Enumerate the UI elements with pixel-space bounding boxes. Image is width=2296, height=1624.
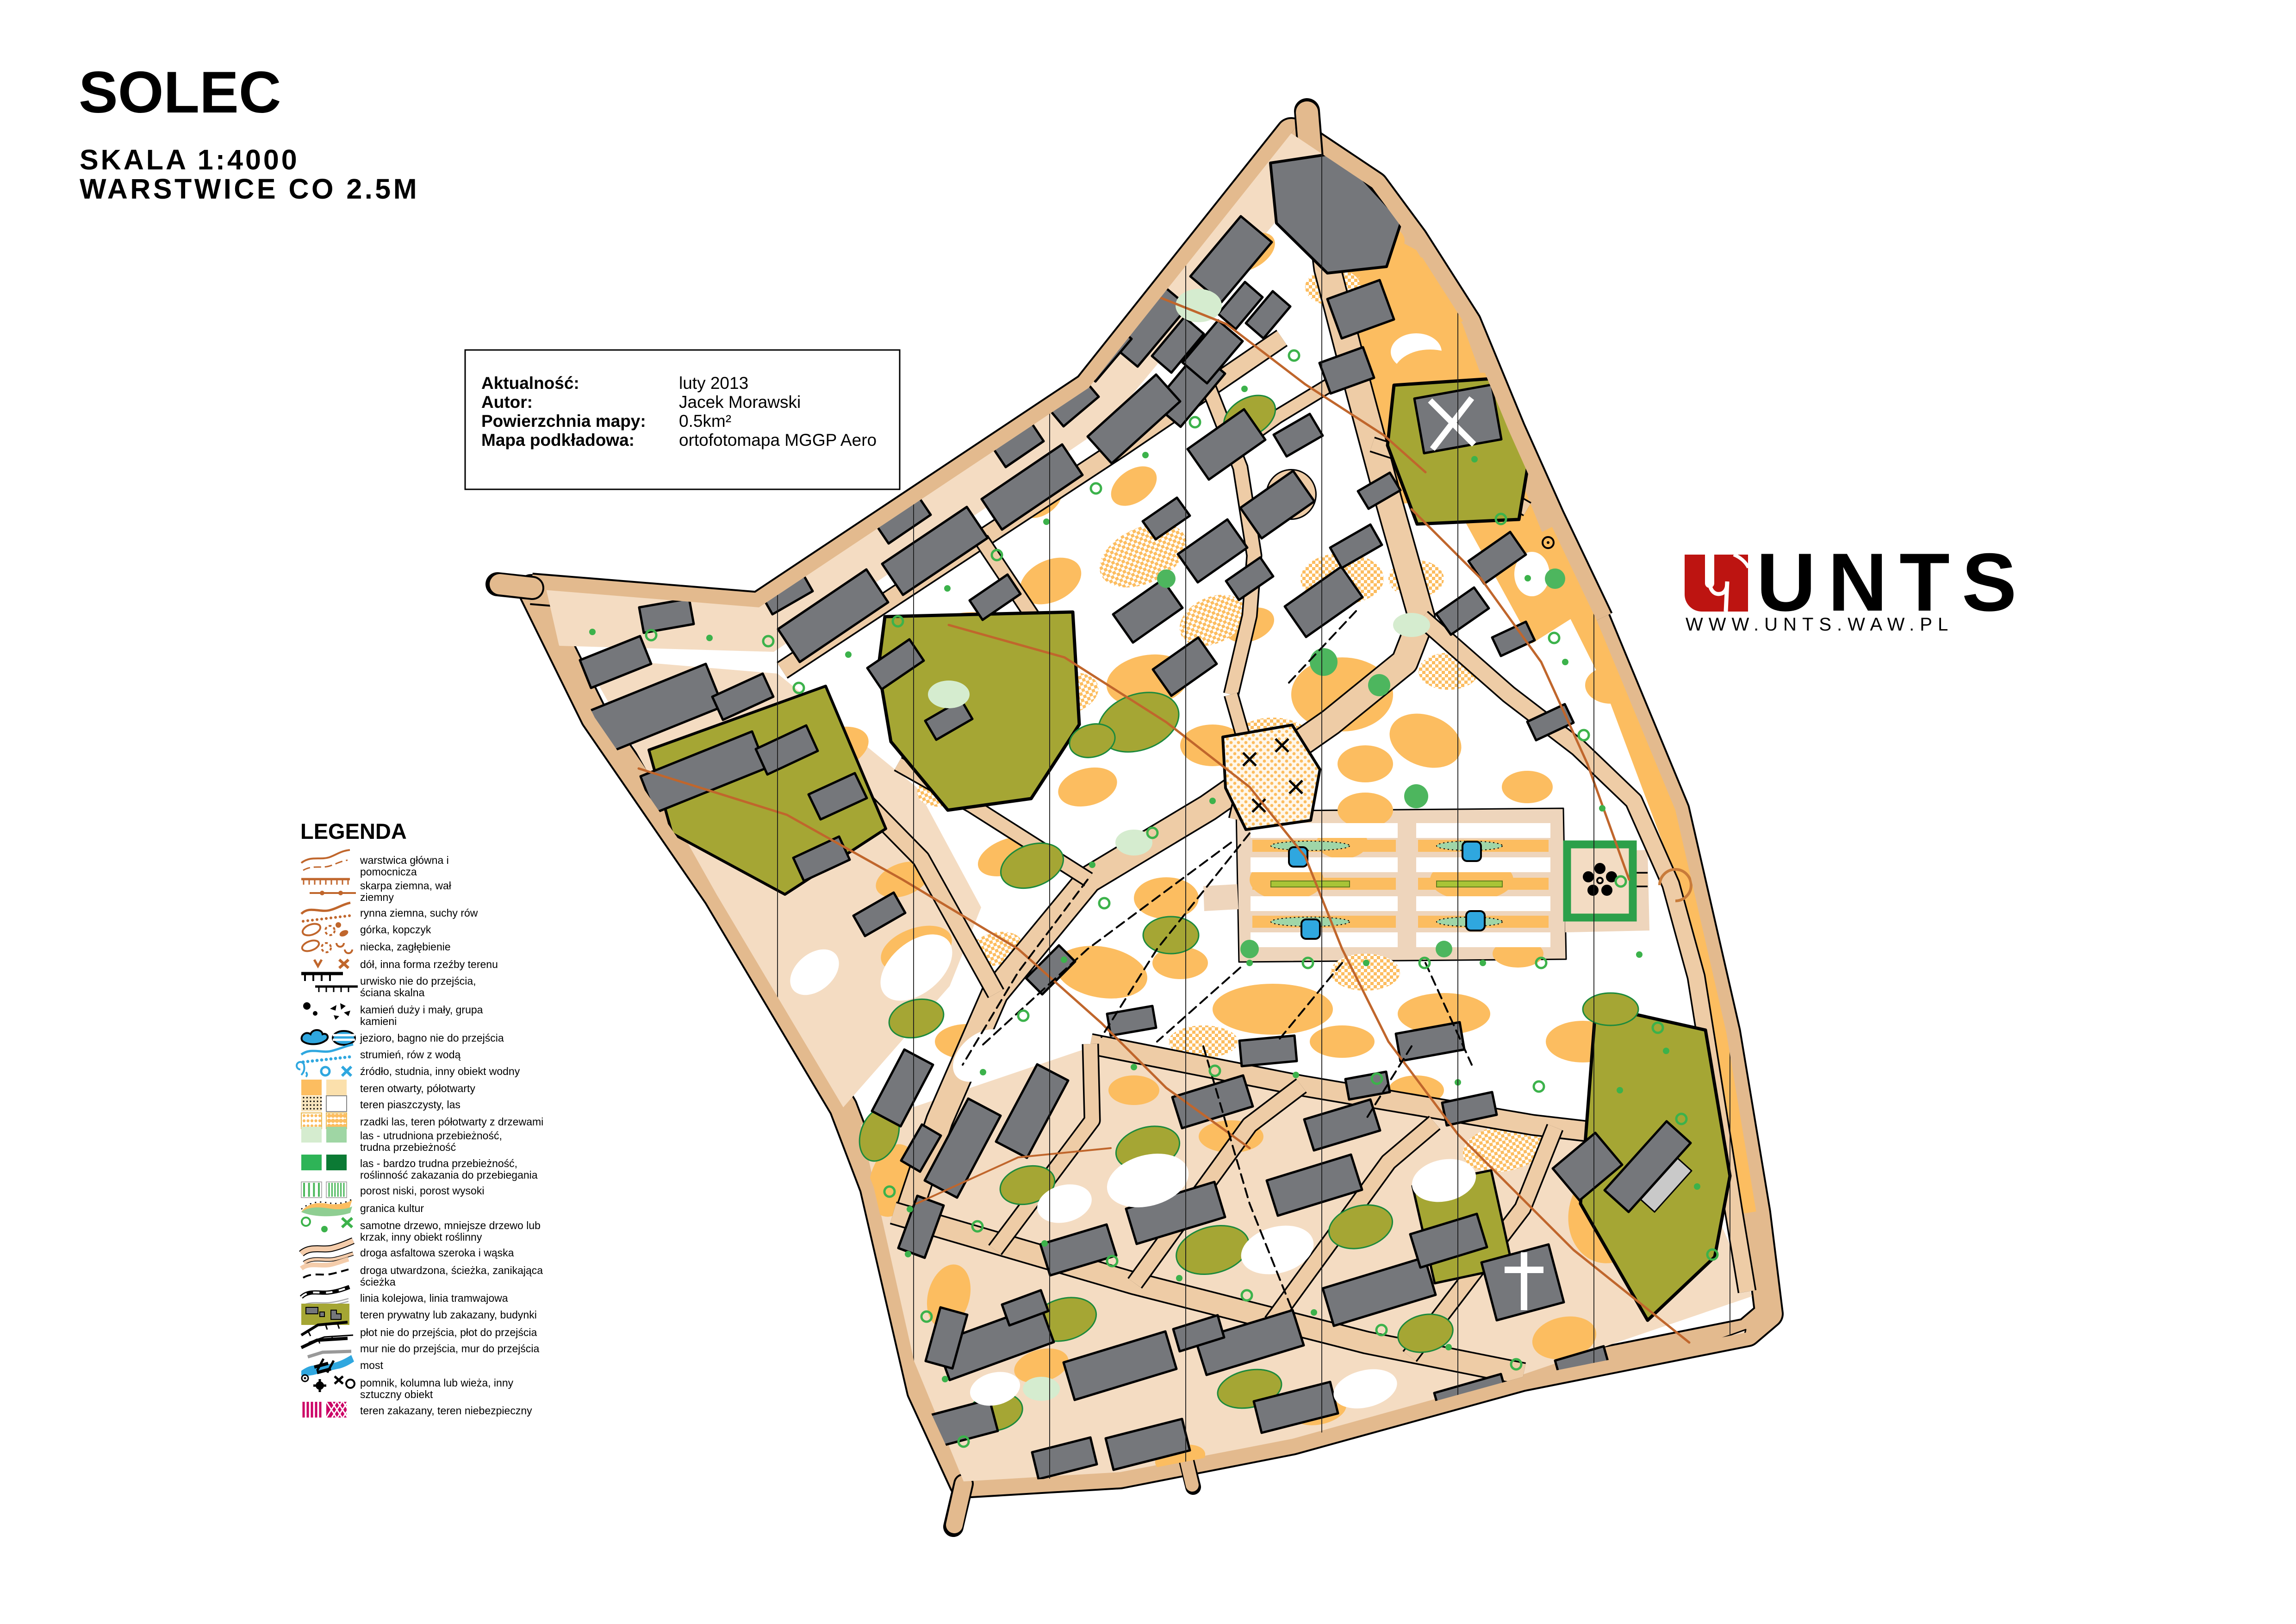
svg-text:droga utwardzona, ścieżka, zan: droga utwardzona, ścieżka, zanikająca — [360, 1264, 543, 1276]
svg-text:teren prywatny lub zakazany, b: teren prywatny lub zakazany, budynki — [360, 1309, 537, 1321]
svg-text:porost niski, porost wysoki: porost niski, porost wysoki — [360, 1185, 484, 1197]
svg-text:SOLEC: SOLEC — [79, 59, 281, 125]
svg-text:WWW.UNTS.WAW.PL: WWW.UNTS.WAW.PL — [1686, 614, 1954, 635]
svg-text:WARSTWICE CO 2.5M: WARSTWICE CO 2.5M — [80, 173, 419, 205]
svg-text:luty 2013: luty 2013 — [679, 374, 748, 393]
svg-text:droga asfaltowa szeroka i wąsk: droga asfaltowa szeroka i wąska — [360, 1247, 514, 1259]
svg-text:jezioro, bagno nie do przejści: jezioro, bagno nie do przejścia — [360, 1032, 504, 1044]
svg-text:górka, kopczyk: górka, kopczyk — [360, 924, 431, 936]
svg-text:rzadki las, teren półotwarty z: rzadki las, teren półotwarty z drzewami — [360, 1116, 543, 1128]
svg-text:LEGENDA: LEGENDA — [300, 819, 407, 843]
svg-text:źródło, studnia, inny obiekt w: źródło, studnia, inny obiekt wodny — [360, 1065, 520, 1077]
svg-text:mur nie do przejścia, mur do p: mur nie do przejścia, mur do przejścia — [360, 1343, 540, 1355]
svg-text:las - utrudniona przebieżność,: las - utrudniona przebieżność, — [360, 1130, 502, 1142]
svg-text:niecka, zagłębienie: niecka, zagłębienie — [360, 941, 451, 953]
svg-text:ziemny: ziemny — [360, 891, 394, 903]
svg-text:strumień, rów z wodą: strumień, rów z wodą — [360, 1049, 461, 1061]
svg-text:roślinność zakazania do przebi: roślinność zakazania do przebiegania — [360, 1169, 538, 1181]
svg-text:pomocnicza: pomocnicza — [360, 866, 417, 878]
svg-text:kamień duży i mały, grupa: kamień duży i mały, grupa — [360, 1004, 483, 1016]
svg-text:samotne drzewo, mniejsze drzew: samotne drzewo, mniejsze drzewo lub — [360, 1219, 541, 1231]
svg-text:SKALA 1:4000: SKALA 1:4000 — [80, 144, 299, 175]
svg-text:las - bardzo trudna przebieżno: las - bardzo trudna przebieżność, — [360, 1157, 517, 1169]
svg-text:Autor:: Autor: — [481, 393, 533, 412]
svg-text:warstwica główna i: warstwica główna i — [360, 854, 449, 866]
svg-text:ściana skalna: ściana skalna — [360, 987, 425, 999]
svg-text:płot nie do przejścia, płot do: płot nie do przejścia, płot do przejścia — [360, 1326, 537, 1338]
svg-text:rynna ziemna, suchy rów: rynna ziemna, suchy rów — [360, 907, 478, 919]
svg-text:ścieżka: ścieżka — [360, 1276, 396, 1288]
svg-text:skarpa ziemna, wał: skarpa ziemna, wał — [360, 880, 451, 892]
svg-text:0.5km²: 0.5km² — [679, 412, 731, 431]
svg-text:krzak, inny obiekt roślinny: krzak, inny obiekt roślinny — [360, 1231, 482, 1243]
svg-text:urwisko nie do przejścia,: urwisko nie do przejścia, — [360, 975, 476, 987]
svg-text:kamieni: kamieni — [360, 1015, 397, 1027]
svg-text:teren zakazany, teren niebezpi: teren zakazany, teren niebezpieczny — [360, 1405, 532, 1417]
svg-text:sztuczny obiekt: sztuczny obiekt — [360, 1388, 433, 1400]
svg-text:Powierzchnia mapy:: Powierzchnia mapy: — [481, 412, 646, 431]
svg-text:teren piaszczysty, las: teren piaszczysty, las — [360, 1099, 460, 1111]
svg-text:most: most — [360, 1359, 383, 1371]
svg-text:teren otwarty, półotwarty: teren otwarty, półotwarty — [360, 1082, 475, 1094]
svg-text:linia kolejowa, linia tramwajo: linia kolejowa, linia tramwajowa — [360, 1292, 508, 1304]
svg-text:trudna przebieżność: trudna przebieżność — [360, 1141, 456, 1153]
svg-text:granica kultur: granica kultur — [360, 1202, 424, 1214]
svg-text:pomnik, kolumna lub wieża, inn: pomnik, kolumna lub wieża, inny — [360, 1377, 514, 1389]
svg-text:ortofotomapa MGGP Aero: ortofotomapa MGGP Aero — [679, 431, 877, 450]
svg-text:Aktualność:: Aktualność: — [481, 374, 579, 393]
svg-text:Jacek Morawski: Jacek Morawski — [679, 393, 801, 412]
svg-text:Mapa podkładowa:: Mapa podkładowa: — [481, 431, 635, 450]
svg-text:dół, inna forma rzeźby terenu: dół, inna forma rzeźby terenu — [360, 958, 498, 970]
